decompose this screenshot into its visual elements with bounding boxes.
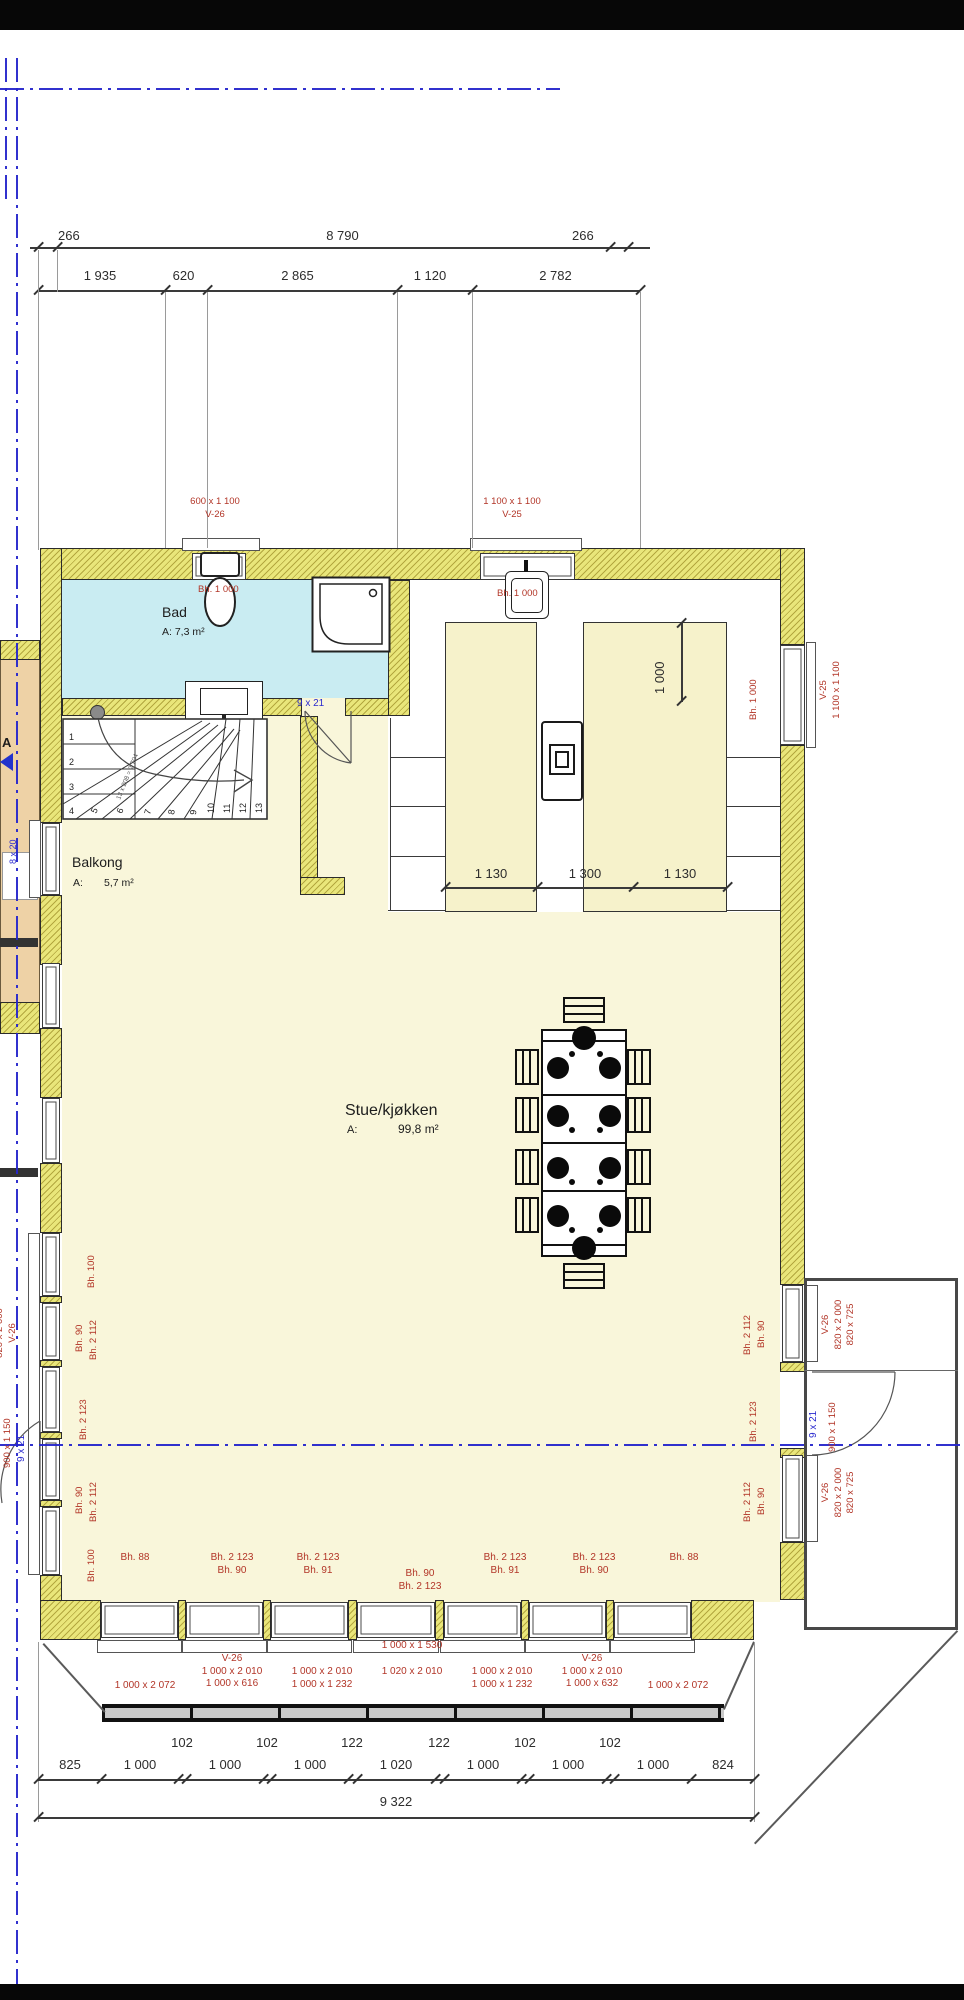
sill-height-label: Bh. 2 112 <box>742 1315 755 1355</box>
window-size-label: 820 x 725 <box>845 1287 858 1362</box>
window-sill <box>610 1640 695 1653</box>
dim-label: 1 300 <box>545 866 625 881</box>
dim-label: 1 000 <box>190 1757 260 1772</box>
shelf-line <box>388 910 445 911</box>
deck-cap-bottom <box>0 1002 40 1034</box>
window-sill <box>97 1640 182 1653</box>
dim-label: 102 <box>585 1735 635 1750</box>
window-left <box>42 1098 60 1163</box>
window-size-label: 1 000 x 632 <box>547 1678 637 1691</box>
window-left <box>42 1233 60 1296</box>
dim-label: 266 <box>58 228 80 243</box>
sill-height-label: Bh. 2 112 <box>742 1482 755 1522</box>
dim-extension <box>38 250 39 550</box>
entry-basin-tap <box>524 560 528 572</box>
dim-extension <box>640 292 641 548</box>
dim-label: 102 <box>157 1735 207 1750</box>
roof-diagonal <box>723 1641 754 1709</box>
window-size-label: 1 000 x 1 232 <box>457 1679 547 1692</box>
wall-top <box>40 548 805 580</box>
sill-height-label: Bh. 2 112 <box>88 1320 101 1360</box>
window-size-label: 1 000 x 1 530 <box>367 1640 457 1653</box>
section-marker-label: A <box>2 735 11 750</box>
wall-right <box>780 745 805 1285</box>
sill-height-label: Bh. 90 <box>380 1568 460 1581</box>
sill-height-label: Bh. 90 <box>74 1325 87 1352</box>
stair-number: 11 <box>222 804 232 813</box>
door-size-label: 900 x 1 150 <box>827 1402 840 1452</box>
shelf-line <box>727 910 780 911</box>
door-size-label: 9 x 21 <box>297 698 324 709</box>
room-area: 5,7 m² <box>104 877 134 889</box>
wall-bottom <box>40 1600 101 1640</box>
dim-label: 122 <box>414 1735 464 1750</box>
sill-height-label: Bh. 2 123 <box>380 1581 460 1594</box>
window-left <box>42 1303 60 1360</box>
shelf-line <box>390 757 445 758</box>
window-right <box>782 1455 803 1542</box>
dim-label: 2 782 <box>513 268 598 283</box>
dim-label: 1 120 <box>390 268 470 283</box>
window-sill <box>525 1640 610 1653</box>
dim-label: 1 000 <box>105 1757 175 1772</box>
dim-label: 1 130 <box>640 866 720 881</box>
window-label: 820 x 2 000 V-26 <box>0 1298 19 1368</box>
chimney-flue <box>555 751 569 768</box>
sill-height-label: Bh. 88 <box>95 1552 175 1565</box>
stair-number: 1 <box>69 732 74 742</box>
shelf-line <box>727 757 780 758</box>
sill-height-label: Bh. 1 000 <box>198 584 239 597</box>
dim-extension <box>57 250 58 292</box>
dim-line <box>38 290 640 292</box>
dim-label: 2 865 <box>255 268 340 283</box>
sill-height-label: Bh. 100 <box>86 1255 99 1288</box>
dim-label: 1 000 <box>652 661 667 694</box>
window-size-label: 1 000 x 2 010 <box>187 1666 277 1679</box>
wall-left-upper <box>40 548 62 823</box>
sill-height-label-group: Bh. 2 123 Bh. 90 <box>192 1552 272 1577</box>
window-sill <box>470 538 582 551</box>
bottom-black-bar <box>0 1984 964 2000</box>
stair-number: 12 <box>238 803 248 813</box>
window-size-label: 1 000 x 616 <box>187 1678 277 1691</box>
sill-height-label: Bh. 2 123 <box>748 1401 761 1442</box>
dim-label: 102 <box>242 1735 292 1750</box>
window-size-label: 1 000 x 2 010 <box>277 1666 367 1679</box>
wall-right-upper <box>780 548 805 645</box>
window-bottom <box>101 1602 178 1638</box>
dim-label: 1 130 <box>451 866 531 881</box>
wall-bottom-mullion <box>521 1600 529 1640</box>
window-label-group: 1 000 x 1 530 1 020 x 2 010 <box>367 1640 457 1678</box>
window-label: V-25 1 100 x 1 100 <box>818 645 843 735</box>
wall-left <box>40 1028 62 1098</box>
door-size-label: 9 x 21 <box>16 1435 27 1462</box>
corridor-edge-line <box>390 718 391 910</box>
window-right-top <box>780 645 805 745</box>
dim-label: 8 790 <box>300 228 385 243</box>
section-marker-arrow-icon <box>0 753 13 771</box>
window-bottom <box>614 1602 691 1638</box>
sill-height-label-group: Bh. 2 123 Bh. 91 <box>465 1552 545 1577</box>
axis-line-horizontal-mid <box>0 1444 964 1446</box>
sill-height-label: Bh. 90 <box>756 1488 769 1515</box>
terrace-railing <box>102 1704 724 1722</box>
stair-number: 3 <box>69 782 74 792</box>
window-size-label: 820 x 2 000 <box>833 1455 846 1530</box>
deck-bar <box>0 1168 38 1177</box>
room-area: A: 7,3 m² <box>162 626 205 638</box>
deck-bar <box>0 938 38 947</box>
window-sill <box>28 1233 40 1575</box>
room-area: 99,8 m² <box>398 1122 439 1136</box>
shelf-line <box>390 856 445 857</box>
stair-number: 13 <box>254 803 264 813</box>
window-size-label: 1 100 x 1 100 <box>462 496 562 509</box>
door-size-label: 8 x 20 <box>8 839 18 864</box>
wall-left-mullion <box>40 1296 62 1303</box>
dim-label: 1 000 <box>275 1757 345 1772</box>
floor-plan-canvas: 1 2 3 4 5 6 7 8 9 10 11 12 13 13 x 208 =… <box>0 0 964 2000</box>
wall-bath-right <box>388 580 410 716</box>
wall-bottom-mullion <box>348 1600 357 1640</box>
shower <box>311 576 391 654</box>
wall-bottom-mullion <box>435 1600 444 1640</box>
window-bottom <box>186 1602 263 1638</box>
axis-line-vertical-short <box>5 58 7 203</box>
wall-bottom-right <box>691 1600 754 1640</box>
shelf-line <box>390 806 445 807</box>
stair-number: 10 <box>206 803 216 813</box>
window-bottom <box>444 1602 521 1638</box>
staircase: 1 2 3 4 5 6 7 8 9 10 11 12 13 13 x 208 =… <box>62 716 268 822</box>
window-label: 600 x 1 100 V-26 <box>170 496 260 521</box>
roof-diagonal <box>43 1643 106 1712</box>
window-size-label: 1 100 x 1 100 <box>831 645 844 735</box>
sill-height-label-group: Bh. 2 123 Bh. 90 <box>554 1552 634 1577</box>
window-size-label: 600 x 1 100 <box>170 496 260 509</box>
dim-label: 1 935 <box>60 268 140 283</box>
wall-right-mullion <box>780 1362 805 1372</box>
shelf-line <box>727 856 780 857</box>
window-size-label: 1 000 x 2 072 <box>100 1680 190 1693</box>
sill-height-label: Bh. 2 123 <box>278 1552 358 1565</box>
window-label: V-26 820 x 2 000 820 x 725 <box>820 1455 858 1530</box>
sill-height-label: Bh. 1 000 <box>748 665 761 720</box>
wall-bottom-mullion <box>178 1600 186 1640</box>
room-name: Bad <box>162 604 187 620</box>
room-area-prefix: A: <box>73 877 83 889</box>
door-size-label: 900 x 1 150 <box>2 1418 15 1468</box>
window-size-label: 820 x 2 000 <box>0 1298 7 1368</box>
window-code-label: V-25 <box>462 509 562 522</box>
wall-right-corner <box>780 1542 805 1600</box>
dim-extension <box>38 1642 39 1822</box>
window-code-label: V-25 <box>818 645 831 735</box>
wall-interior-return <box>300 877 345 895</box>
dim-extension <box>754 1642 755 1822</box>
roof-diagonal <box>754 1630 958 1844</box>
window-size-label: 1 000 x 2 010 <box>547 1666 637 1679</box>
window-label: 1 100 x 1 100 V-25 <box>462 496 562 521</box>
sill-height-label: Bh. 2 123 <box>465 1552 545 1565</box>
window-label: V-26 820 x 2 000 820 x 725 <box>820 1287 858 1362</box>
window-left <box>42 963 60 1028</box>
window-code-label: V-26 <box>7 1298 20 1368</box>
wall-left <box>40 895 62 965</box>
balcony-door-sill <box>29 820 41 898</box>
sill-height-label: Bh. 90 <box>554 1565 634 1578</box>
window-size-label: 1 000 x 1 232 <box>277 1679 367 1692</box>
stair-number: 4 <box>69 806 74 816</box>
dim-extension <box>165 292 166 548</box>
window-size-label: 1 000 x 2 010 <box>457 1666 547 1679</box>
deck-cap-top <box>0 640 40 660</box>
dim-label: 825 <box>40 1757 100 1772</box>
dim-extension <box>397 292 398 548</box>
window-right <box>782 1285 803 1362</box>
annex-divider <box>804 1370 958 1371</box>
room-name: Balkong <box>72 854 123 870</box>
dining-table-group <box>512 992 654 1294</box>
window-code-label: V-26 <box>820 1287 833 1362</box>
sill-height-label: Bh. 91 <box>278 1565 358 1578</box>
dim-label: 102 <box>500 1735 550 1750</box>
window-sill <box>267 1640 352 1653</box>
dim-line <box>38 1779 754 1781</box>
window-label-group: V-26 1 000 x 2 010 1 000 x 616 <box>187 1653 277 1691</box>
dim-line <box>30 247 650 249</box>
dim-label: 620 <box>156 268 211 283</box>
window-sill <box>182 538 260 551</box>
window-label-group: 1 000 x 2 010 1 000 x 1 232 <box>457 1666 547 1691</box>
axis-line-vertical <box>16 58 18 1984</box>
sill-height-label-group: Bh. 2 123 Bh. 91 <box>278 1552 358 1577</box>
dim-label: 266 <box>572 228 594 243</box>
room-area-prefix: A: <box>347 1124 357 1136</box>
bathroom-door-swing <box>293 708 357 770</box>
sill-height-label: Bh. 88 <box>644 1552 724 1565</box>
wall-left-mullion <box>40 1360 62 1367</box>
sill-height-label: Bh. 90 <box>192 1565 272 1578</box>
window-size-label: 1 020 x 2 010 <box>367 1666 457 1679</box>
dim-label: 1 000 <box>448 1757 518 1772</box>
window-code-label: V-26 <box>820 1455 833 1530</box>
axis-line-horizontal-top <box>0 88 560 90</box>
door-size-label: 9 x 21 <box>808 1411 819 1438</box>
dim-label: 1 000 <box>618 1757 688 1772</box>
window-bottom <box>357 1602 435 1638</box>
sill-height-label-group: Bh. 90 Bh. 2 123 <box>380 1568 460 1593</box>
window-code-label: V-26 <box>187 1653 277 1666</box>
sill-height-label: Bh. 1 000 <box>497 588 538 601</box>
window-size-label: 820 x 2 000 <box>833 1287 846 1362</box>
dim-label: 1 000 <box>533 1757 603 1772</box>
sill-height-label: Bh. 90 <box>756 1321 769 1348</box>
window-size-label: 820 x 725 <box>845 1455 858 1530</box>
sill-height-label: Bh. 2 123 <box>192 1552 272 1565</box>
window-label-group: V-26 1 000 x 2 010 1 000 x 632 <box>547 1653 637 1691</box>
wall-bottom-mullion <box>263 1600 271 1640</box>
balcony-door <box>42 823 60 895</box>
sill-height-label: Bh. 2 112 <box>88 1482 101 1522</box>
sill-height-label: Bh. 90 <box>74 1487 87 1514</box>
window-bottom <box>271 1602 348 1638</box>
window-sill <box>182 1640 267 1653</box>
dim-line <box>38 1817 754 1819</box>
stair-number: 2 <box>69 757 74 767</box>
wall-left <box>40 1163 62 1233</box>
dim-line <box>681 622 683 702</box>
top-black-bar <box>0 0 964 30</box>
dim-label: 122 <box>327 1735 377 1750</box>
window-left <box>42 1507 60 1575</box>
room-name: Stue/kjøkken <box>345 1102 437 1120</box>
shelf-line <box>727 806 780 807</box>
window-code-label: V-26 <box>547 1653 637 1666</box>
window-bottom <box>529 1602 606 1638</box>
window-code-label: V-26 <box>170 509 260 522</box>
dim-label: 1 020 <box>361 1757 431 1772</box>
wall-bottom-mullion <box>606 1600 614 1640</box>
dim-label: 824 <box>693 1757 753 1772</box>
window-size-label: 1 000 x 2 072 <box>633 1680 723 1693</box>
dim-label-total: 9 322 <box>356 1794 436 1809</box>
dim-line <box>445 887 727 889</box>
bath-sink-basin <box>200 688 248 715</box>
sill-height-label: Bh. 91 <box>465 1565 545 1578</box>
stair-number: 9 <box>188 809 198 815</box>
sill-height-label: Bh. 2 123 <box>554 1552 634 1565</box>
sill-height-label: Bh. 2 123 <box>78 1399 91 1440</box>
window-label-group: 1 000 x 2 010 1 000 x 1 232 <box>277 1666 367 1691</box>
window-sill <box>806 642 816 748</box>
